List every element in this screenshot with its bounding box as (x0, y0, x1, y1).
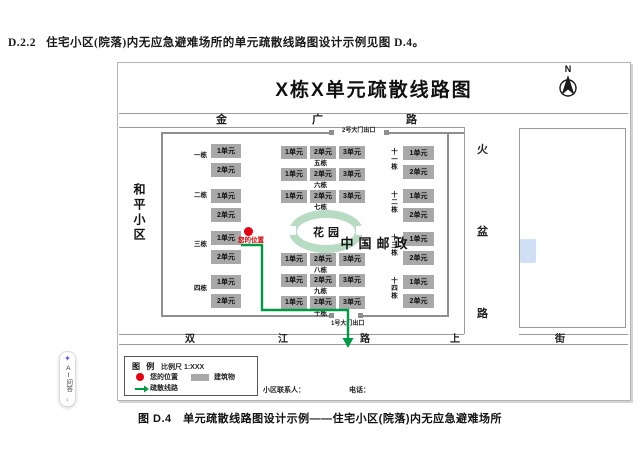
gate-post (329, 130, 334, 135)
road-line-top-south (119, 127, 464, 128)
road-bottom-char-5: 街 (555, 335, 565, 345)
building-row: 1单元 2单元 3单元 (281, 253, 365, 266)
building-row: 1单元 2单元 3单元 (281, 274, 365, 287)
unit-block: 3单元 (339, 146, 365, 159)
building-label: 五栋 (314, 161, 327, 168)
legend-route-label: 疏散线路 (150, 385, 178, 392)
building-label: 二栋 (194, 193, 207, 200)
building-row: 1单元 2单元 3单元 (281, 168, 365, 181)
legend-building-label: 建筑物 (214, 374, 235, 381)
legend-building-swatch (191, 374, 209, 381)
your-location-label: 您的位置 (238, 238, 264, 245)
road-top-char-1: 金 (216, 115, 227, 126)
unit-block: 2单元 (310, 190, 336, 203)
ai-widget-label[interactable]: AI问答 (64, 365, 71, 396)
road-bottom-char-2: 江 (278, 335, 288, 345)
unit-block: 1单元 (211, 189, 241, 203)
legend-location-dot (136, 373, 144, 381)
road-line-top-north (119, 113, 628, 114)
post-office-label: 中国邮政 (118, 233, 630, 252)
road-top-char-3: 路 (406, 115, 417, 126)
document-page: D.2.2住宅小区(院落)内无应急避难场所的单元疏散线路图设计示例见图 D.4。… (0, 0, 640, 467)
unit-block: 1单元 (403, 189, 434, 203)
post-office-block (519, 128, 626, 328)
road-line-bottom-north-east (519, 334, 628, 335)
unit-block: 2单元 (211, 250, 241, 264)
your-location-dot (244, 227, 253, 236)
road-line-bottom-south (119, 344, 628, 345)
unit-block: 2单元 (403, 294, 434, 308)
map-title: X栋X单元疏散线路图 (118, 75, 630, 102)
building-row: 1单元 2单元 3单元 (281, 146, 365, 159)
gate-post (329, 313, 334, 318)
legend-location-label: 您的位置 (150, 374, 178, 381)
road-right-char-3: 路 (477, 309, 488, 320)
unit-block: 2单元 (403, 251, 434, 265)
road-bottom-char-4: 上 (450, 335, 460, 345)
unit-block: 1单元 (281, 253, 307, 266)
unit-block: 2单元 (403, 165, 434, 179)
route-arrowhead (343, 338, 354, 348)
unit-block: 1单元 (211, 275, 241, 289)
unit-block: 1单元 (281, 296, 307, 309)
building-label: 六栋 (314, 183, 327, 190)
unit-block: 3单元 (339, 253, 365, 266)
unit-block: 3单元 (339, 296, 365, 309)
building-label: 十一栋 (389, 148, 396, 171)
building-label: 十二栋 (389, 191, 396, 214)
unit-block: 1单元 (211, 144, 241, 158)
unit-block: 1单元 (281, 168, 307, 181)
gate-2-label: 2号大门出口 (342, 128, 375, 134)
unit-block: 2单元 (310, 296, 336, 309)
gate-post (358, 313, 363, 318)
figure-caption: 图 D.4 单元疏散线路图设计示例——住宅小区(院落)内无应急避难场所 (0, 410, 640, 426)
building-label: 一栋 (194, 153, 207, 160)
building-label: 十四栋 (389, 277, 396, 300)
watermark (520, 239, 536, 263)
wall-connector (449, 132, 464, 134)
building-row: 1单元 2单元 3单元 (281, 190, 365, 203)
unit-block: 2单元 (211, 163, 241, 177)
unit-block: 1单元 (403, 146, 434, 160)
collapse-chevron-icon[interactable]: ‹ (66, 396, 69, 404)
legend-box: 图 例 比例尺 1:XXX 您的位置 建筑物 疏散线路 (124, 356, 258, 396)
gate-1-label: 1号大门出口 (331, 321, 364, 327)
unit-block: 2单元 (310, 253, 336, 266)
evacuation-map-figure: X栋X单元疏散线路图 N 金 广 路 火 盆 路 双 江 路 上 街 和平小区 (117, 62, 631, 401)
unit-block: 1单元 (403, 275, 434, 289)
unit-block: 1单元 (281, 190, 307, 203)
building-label: 十栋 (314, 311, 327, 318)
ai-assistant-widget[interactable]: ✦ AI问答 ‹ (59, 351, 76, 407)
section-paragraph: D.2.2住宅小区(院落)内无应急避难场所的单元疏散线路图设计示例见图 D.4。 (8, 34, 632, 50)
compass-icon (556, 74, 580, 98)
road-line-bottom-north-west (119, 334, 464, 335)
unit-block: 2单元 (310, 146, 336, 159)
unit-block: 3单元 (339, 168, 365, 181)
section-number: D.2.2 (8, 37, 36, 49)
north-arrow: N (555, 65, 581, 103)
contact-label: 小区联系人： (263, 385, 305, 395)
building-label: 四栋 (194, 286, 207, 293)
north-label: N (555, 65, 581, 74)
section-text: 住宅小区(院落)内无应急避难场所的单元疏散线路图设计示例见图 D.4。 (46, 37, 424, 49)
gate-post (384, 130, 389, 135)
building-label: 九栋 (314, 289, 327, 296)
unit-block: 2单元 (403, 208, 434, 222)
unit-block: 1单元 (281, 274, 307, 287)
unit-block: 3单元 (339, 190, 365, 203)
legend-route-arrow-icon (135, 385, 149, 393)
unit-block: 2单元 (211, 208, 241, 222)
unit-block: 1单元 (281, 146, 307, 159)
building-row: 1单元 2单元 3单元 (281, 296, 365, 309)
unit-block: 2单元 (211, 294, 241, 308)
road-right-char-1: 火 (477, 145, 488, 156)
legend-scale: 比例尺 1:XXX (161, 362, 204, 372)
unit-block: 3单元 (339, 274, 365, 287)
phone-label: 电话： (349, 385, 370, 395)
road-bottom-char-3: 路 (360, 335, 370, 345)
legend-title: 图 例 (132, 361, 156, 372)
unit-block: 2单元 (310, 168, 336, 181)
road-line-right-west (464, 127, 465, 334)
road-top-char-2: 广 (312, 115, 323, 126)
unit-block: 2单元 (310, 274, 336, 287)
gate-1-opening (334, 313, 358, 319)
ai-sparkle-icon: ✦ (64, 355, 71, 363)
road-bottom-char-1: 双 (185, 335, 195, 345)
